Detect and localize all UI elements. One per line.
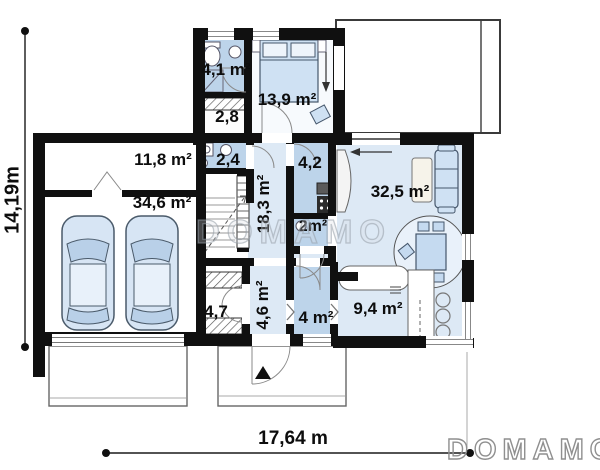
room-label-living: 32,5 m² [371, 182, 430, 202]
car-icon [62, 216, 114, 330]
room-label-bathroom-upper: 4,1 m² [201, 60, 250, 80]
terrace-outline [336, 20, 500, 133]
room-label-wardrobe: 4,7 [204, 302, 228, 322]
sofa-icon [435, 145, 458, 213]
garage-door [52, 334, 184, 346]
room-label-garage: 34,6 m² [133, 193, 192, 213]
room-label-pantry: 4,2 [298, 153, 322, 173]
dimension-width-label: 17,64 m [258, 428, 328, 450]
room-label-utility: 11,8 m² [134, 150, 192, 170]
room-label-kitchen: 9,4 m² [353, 299, 402, 319]
floor-plan: 4,1 m² 2,8 13,9 m² 11,8 m² 2,4 4,2 18,3 … [0, 0, 600, 470]
room-label-bathroom-mid: 2,4 [216, 150, 240, 170]
car-icon [126, 216, 178, 330]
room-label-bathroom-lower: 4 m² [299, 308, 334, 328]
brand-logo: DOMAMO [447, 434, 600, 467]
entrance-porch [218, 346, 346, 406]
room-label-bedroom: 13,9 m² [258, 90, 317, 110]
room-label-entry: 4,6 m² [253, 280, 273, 329]
room-label-closet-upper: 2,8 [215, 107, 239, 127]
driveway [49, 346, 187, 406]
watermark-center: DOMAMO [196, 213, 392, 251]
sink-icon-upper [229, 46, 241, 58]
dimension-height-label: 14,19m [2, 166, 25, 234]
